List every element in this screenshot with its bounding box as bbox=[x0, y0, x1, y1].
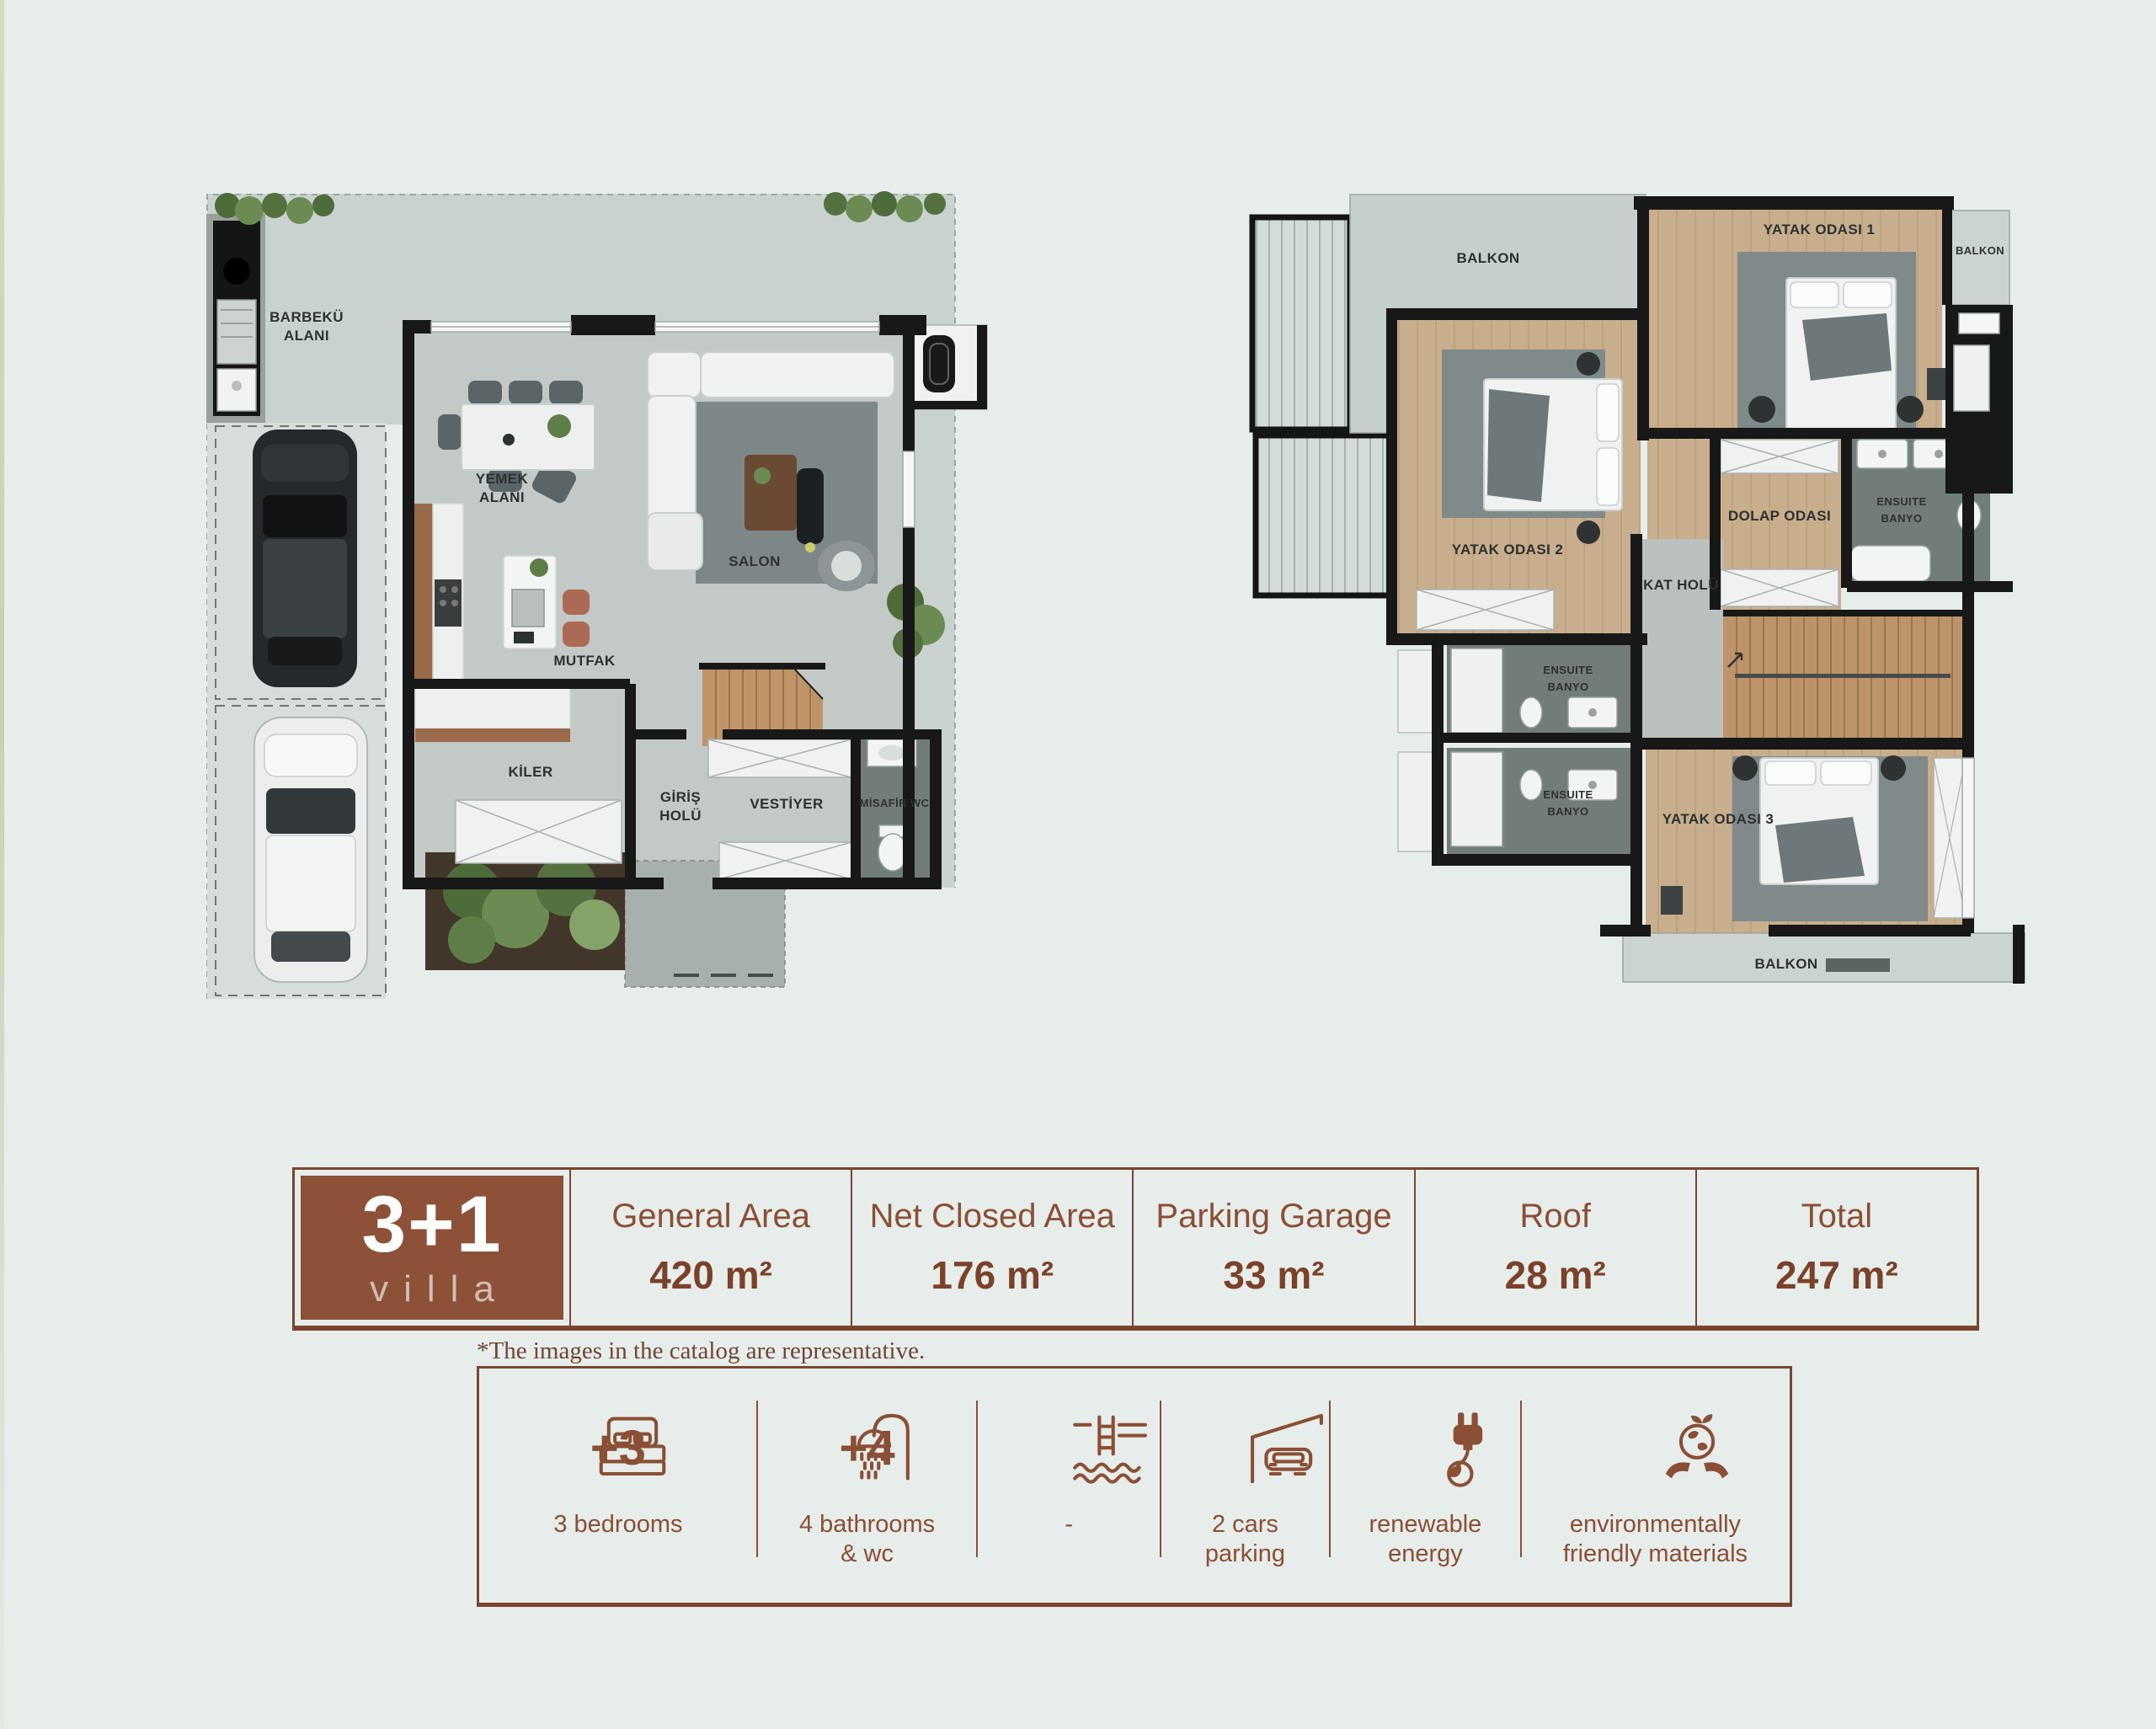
catalog-note: *The images in the catalog are represent… bbox=[477, 1337, 925, 1365]
spec-col-total: Total 247 m² bbox=[1695, 1170, 1977, 1326]
room-label-balkon-right: BALKON bbox=[1956, 244, 2004, 257]
room-label-misafir-wc: MİSAFİR WC bbox=[860, 797, 930, 809]
feature-parking: 2 cars parking bbox=[1161, 1369, 1330, 1603]
room-label-balkon-top: BALKON bbox=[1456, 250, 1519, 266]
svg-text:ALANI: ALANI bbox=[284, 328, 329, 344]
car-dark bbox=[253, 430, 357, 687]
page-edge-strip bbox=[0, 0, 4, 1729]
room-label-yatak-3: YATAK ODASI 3 bbox=[1662, 811, 1774, 827]
spec-col-net-closed-area: Net Closed Area 176 m² bbox=[851, 1170, 1132, 1326]
room-label-salon: SALON bbox=[728, 553, 781, 569]
room-label-barbeku: BARBEKÜ bbox=[269, 309, 344, 325]
svg-text:BANYO: BANYO bbox=[1548, 805, 1589, 818]
features-strip: +3 3 bedrooms +4 4 bathrooms & wc bbox=[477, 1366, 1792, 1607]
svg-text:BANYO: BANYO bbox=[1881, 512, 1923, 525]
spec-col-parking-garage: Parking Garage 33 m² bbox=[1132, 1170, 1413, 1326]
room-label-balkon-bottom: BALKON bbox=[1754, 956, 1817, 972]
outdoor-bath bbox=[914, 325, 987, 409]
room-label-yemek: YEMEK bbox=[476, 471, 529, 487]
carport-icon bbox=[1245, 1406, 1329, 1491]
bed-1 bbox=[1737, 252, 1947, 431]
eco-icon bbox=[1655, 1406, 1739, 1491]
spec-table: 3+1 villa General Area 420 m² Net Closed… bbox=[292, 1167, 1979, 1331]
room-label-kat-holu: KAT HOLÜ bbox=[1643, 577, 1719, 593]
spec-col-roof: Roof 28 m² bbox=[1414, 1170, 1695, 1326]
room-label-ensuite-mid: ENSUITE bbox=[1543, 664, 1593, 676]
feature-energy: renewable energy bbox=[1330, 1369, 1521, 1603]
upper-stairs bbox=[1723, 615, 1962, 739]
feature-bedrooms: +3 3 bedrooms bbox=[479, 1369, 757, 1603]
bed-icon bbox=[590, 1406, 675, 1491]
feature-pool: - bbox=[977, 1369, 1161, 1603]
unit-type-title: 3+1 bbox=[361, 1185, 502, 1265]
room-label-mutfak: MUTFAK bbox=[553, 653, 616, 669]
svg-text:BANYO: BANYO bbox=[1548, 680, 1589, 693]
svg-text:ALANI: ALANI bbox=[479, 489, 525, 505]
unit-type-subtitle: villa bbox=[355, 1268, 510, 1310]
bbq-unit bbox=[206, 214, 265, 423]
room-label-dolap: DOLAP ODASI bbox=[1728, 508, 1831, 524]
room-label-kiler: KİLER bbox=[509, 764, 553, 780]
svg-text:HOLÜ: HOLÜ bbox=[659, 808, 702, 824]
car-white bbox=[254, 718, 367, 982]
room-label-vestiyer: VESTİYER bbox=[750, 796, 823, 812]
pool-icon bbox=[1069, 1406, 1153, 1491]
spec-col-general-area: General Area 420 m² bbox=[569, 1170, 851, 1326]
room-label-yatak-2: YATAK ODASI 2 bbox=[1452, 542, 1563, 558]
room-label-yatak-1: YATAK ODASI 1 bbox=[1764, 221, 1875, 237]
upper-floor-plan: BALKON YATAK ODASI 1 BALKON YATAK ODASI … bbox=[1246, 190, 2038, 990]
feature-eco: environmentally friendly materials bbox=[1521, 1369, 1790, 1603]
unit-type-badge: 3+1 villa bbox=[301, 1176, 563, 1320]
plug-icon bbox=[1425, 1406, 1509, 1491]
catalog-page: BARBEKÜ ALANI YEMEK ALANI SALON MUTFAK K… bbox=[0, 0, 2156, 1729]
room-label-ensuite-low: ENSUITE bbox=[1543, 788, 1593, 801]
room-label-giris: GİRİŞ bbox=[660, 789, 701, 805]
shower-icon bbox=[839, 1406, 923, 1491]
feature-bathrooms: +4 4 bathrooms & wc bbox=[757, 1369, 977, 1603]
room-label-ensuite-right: ENSUITE bbox=[1876, 495, 1926, 508]
ground-floor-plan: BARBEKÜ ALANI YEMEK ALANI SALON MUTFAK K… bbox=[202, 190, 1002, 1044]
